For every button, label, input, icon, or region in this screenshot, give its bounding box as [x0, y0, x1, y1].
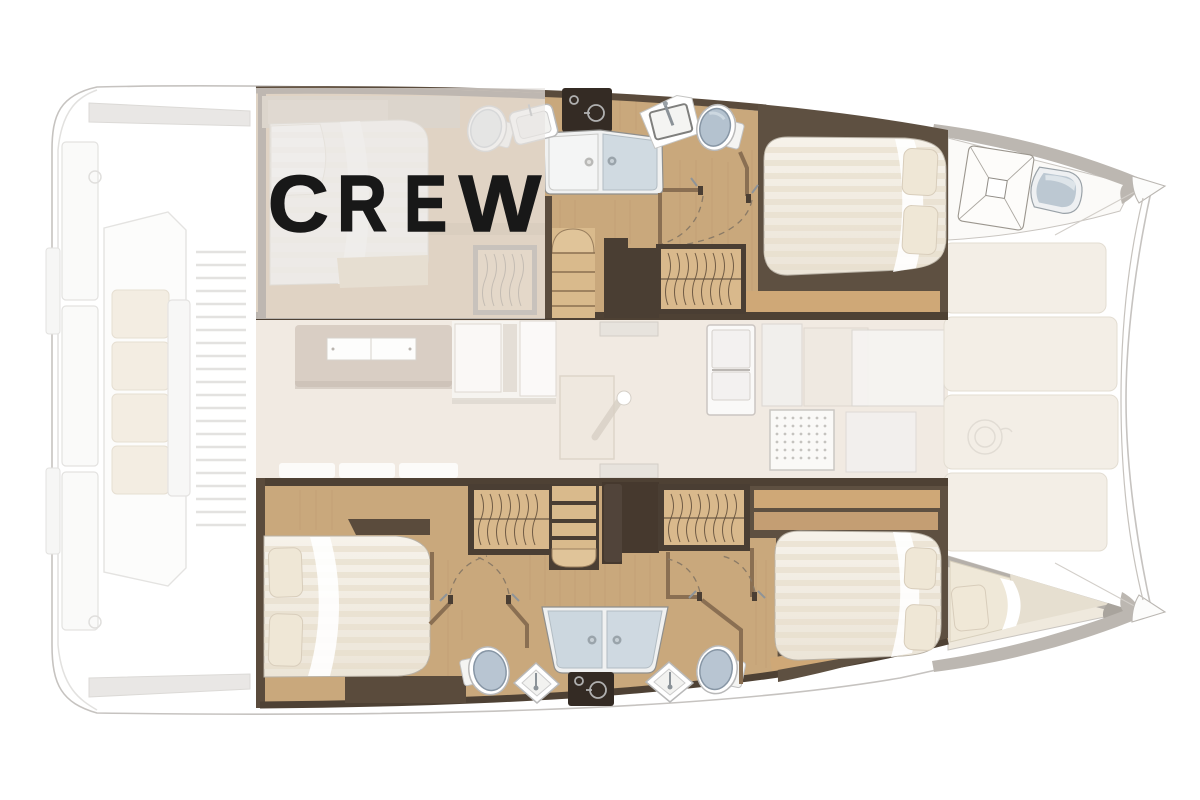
- svg-text:E: E: [404, 159, 447, 248]
- svg-text:R: R: [337, 158, 387, 248]
- svg-text:W: W: [459, 158, 541, 248]
- svg-text:C: C: [268, 160, 329, 249]
